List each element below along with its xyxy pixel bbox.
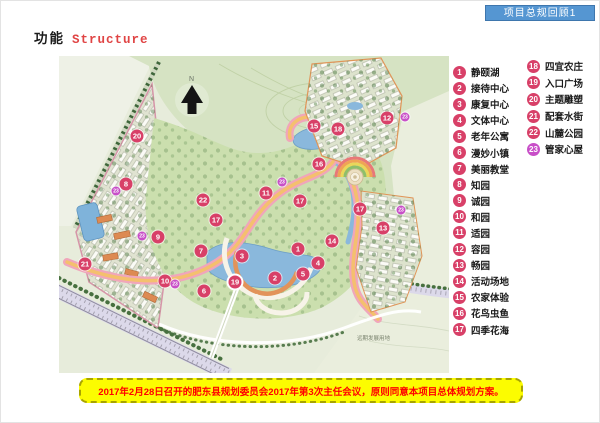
legend-label: 活动场地 — [471, 274, 509, 288]
map-marker-1: 1 — [292, 243, 305, 256]
legend-number-badge: 19 — [527, 76, 540, 89]
page-title-en: Structure — [72, 33, 149, 47]
legend-column-2: 18四宜农庄19入口广场20主题雕塑21配套水街22山麓公园23管家心屋 — [527, 58, 583, 158]
map-marker-23: 23 — [171, 280, 180, 289]
slide: 项目总规回顾1 功能Structure — [0, 0, 600, 423]
legend-label: 知园 — [471, 178, 490, 192]
map-marker-23: 23 — [138, 232, 147, 241]
legend-label: 花鸟虫鱼 — [471, 306, 509, 320]
map-marker-18: 18 — [332, 123, 345, 136]
map-marker-17: 17 — [210, 214, 223, 227]
map-marker-5: 5 — [297, 268, 310, 281]
legend-label: 主题雕塑 — [545, 92, 583, 106]
legend-number-badge: 15 — [453, 291, 466, 304]
legend-label: 山麓公园 — [545, 126, 583, 140]
page-title: 功能Structure — [34, 27, 149, 47]
map-marker-8: 8 — [120, 178, 133, 191]
legend-label: 农家体验 — [471, 290, 509, 304]
map-marker-2: 2 — [269, 272, 282, 285]
legend-item-10: 10和园 — [453, 209, 509, 225]
legend-item-23: 23管家心屋 — [527, 141, 583, 158]
legend-number-badge: 16 — [453, 307, 466, 320]
map-marker-23: 23 — [278, 178, 287, 187]
legend-column-1: 1静颐湖2接待中心3康复中心4文体中心5老年公寓6漫妙小镇7美丽教堂8知园9诚园… — [453, 64, 509, 338]
legend-item-4: 4文体中心 — [453, 112, 509, 128]
map-marker-21: 21 — [79, 258, 92, 271]
legend-label: 配套水街 — [545, 109, 583, 123]
legend-item-13: 13畅园 — [453, 257, 509, 273]
map-marker-layer: 1234567891011121314151617171718192021222… — [59, 56, 449, 373]
legend-item-5: 5老年公寓 — [453, 128, 509, 144]
legend-number-badge: 1 — [453, 66, 466, 79]
map-marker-9: 9 — [152, 231, 165, 244]
map-marker-23: 23 — [112, 187, 121, 196]
legend-label: 和园 — [471, 210, 490, 224]
map-marker-13: 13 — [377, 222, 390, 235]
legend-number-badge: 23 — [527, 143, 540, 156]
map-marker-23: 23 — [397, 206, 406, 215]
map-marker-4: 4 — [312, 257, 325, 270]
legend-item-9: 9诚园 — [453, 193, 509, 209]
legend-item-3: 3康复中心 — [453, 96, 509, 112]
map-marker-3: 3 — [236, 250, 249, 263]
legend-label: 静颐湖 — [471, 65, 500, 79]
legend-item-7: 7美丽教堂 — [453, 161, 509, 177]
legend-item-17: 17四季花海 — [453, 322, 509, 338]
legend-number-badge: 3 — [453, 98, 466, 111]
legend-number-badge: 8 — [453, 178, 466, 191]
map-marker-7: 7 — [195, 245, 208, 258]
legend-label: 接待中心 — [471, 81, 509, 95]
legend-item-11: 11适园 — [453, 225, 509, 241]
legend-item-22: 22山麓公园 — [527, 124, 583, 141]
legend-number-badge: 17 — [453, 323, 466, 336]
map-marker-11: 11 — [260, 187, 273, 200]
legend-label: 适园 — [471, 226, 490, 240]
legend-label: 老年公寓 — [471, 129, 509, 143]
page-title-zh: 功能 — [34, 31, 65, 46]
legend-number-badge: 12 — [453, 243, 466, 256]
footnote-text: 2017年2月28日召开的肥东县规划委员会2017年第3次主任会议，原则同意本项… — [98, 384, 503, 398]
legend-number-badge: 18 — [527, 60, 540, 73]
legend-number-badge: 20 — [527, 93, 540, 106]
legend-number-badge: 2 — [453, 82, 466, 95]
legend-label: 康复中心 — [471, 97, 509, 111]
legend-item-8: 8知园 — [453, 177, 509, 193]
legend-label: 畅园 — [471, 258, 490, 272]
legend-item-16: 16花鸟虫鱼 — [453, 305, 509, 321]
legend-item-12: 12容园 — [453, 241, 509, 257]
legend-number-badge: 11 — [453, 226, 466, 239]
legend-item-18: 18四宜农庄 — [527, 58, 583, 75]
legend-number-badge: 13 — [453, 259, 466, 272]
map-marker-12: 12 — [381, 112, 394, 125]
legend-number-badge: 22 — [527, 126, 540, 139]
legend-label: 四宜农庄 — [545, 59, 583, 73]
legend-item-20: 20主题雕塑 — [527, 91, 583, 108]
legend-number-badge: 5 — [453, 130, 466, 143]
legend-label: 诚园 — [471, 194, 490, 208]
map-marker-6: 6 — [198, 285, 211, 298]
map-marker-20: 20 — [131, 130, 144, 143]
legend-label: 文体中心 — [471, 113, 509, 127]
legend-label: 四季花海 — [471, 323, 509, 337]
legend-label: 容园 — [471, 242, 490, 256]
legend-number-badge: 21 — [527, 110, 540, 123]
legend-item-14: 14活动场地 — [453, 273, 509, 289]
legend-label: 入口广场 — [545, 76, 583, 90]
map-marker-17: 17 — [294, 195, 307, 208]
legend-item-1: 1静颐湖 — [453, 64, 509, 80]
legend-number-badge: 4 — [453, 114, 466, 127]
legend-number-badge: 6 — [453, 146, 466, 159]
map-marker-16: 16 — [313, 158, 326, 171]
map-marker-22: 22 — [197, 194, 210, 207]
legend-label: 管家心屋 — [545, 142, 583, 156]
slide-section-tag: 项目总规回顾1 — [485, 5, 595, 21]
legend-item-15: 15农家体验 — [453, 289, 509, 305]
map-marker-19: 19 — [229, 276, 242, 289]
legend-number-badge: 10 — [453, 210, 466, 223]
map-marker-23: 23 — [401, 113, 410, 122]
legend-label: 漫妙小镇 — [471, 146, 509, 160]
legend-label: 美丽教堂 — [471, 162, 509, 176]
legend-item-2: 2接待中心 — [453, 80, 509, 96]
legend-item-19: 19入口广场 — [527, 75, 583, 92]
legend-number-badge: 14 — [453, 275, 466, 288]
map-marker-10: 10 — [159, 275, 172, 288]
master-plan-map: N 远期发展用地 1234567891011121314151617171718… — [59, 56, 449, 373]
footnote-banner: 2017年2月28日召开的肥东县规划委员会2017年第3次主任会议，原则同意本项… — [79, 378, 523, 403]
map-marker-14: 14 — [326, 235, 339, 248]
legend-item-6: 6漫妙小镇 — [453, 144, 509, 160]
legend-item-21: 21配套水街 — [527, 108, 583, 125]
map-marker-17: 17 — [354, 203, 367, 216]
legend-number-badge: 9 — [453, 194, 466, 207]
map-marker-15: 15 — [308, 120, 321, 133]
legend-number-badge: 7 — [453, 162, 466, 175]
